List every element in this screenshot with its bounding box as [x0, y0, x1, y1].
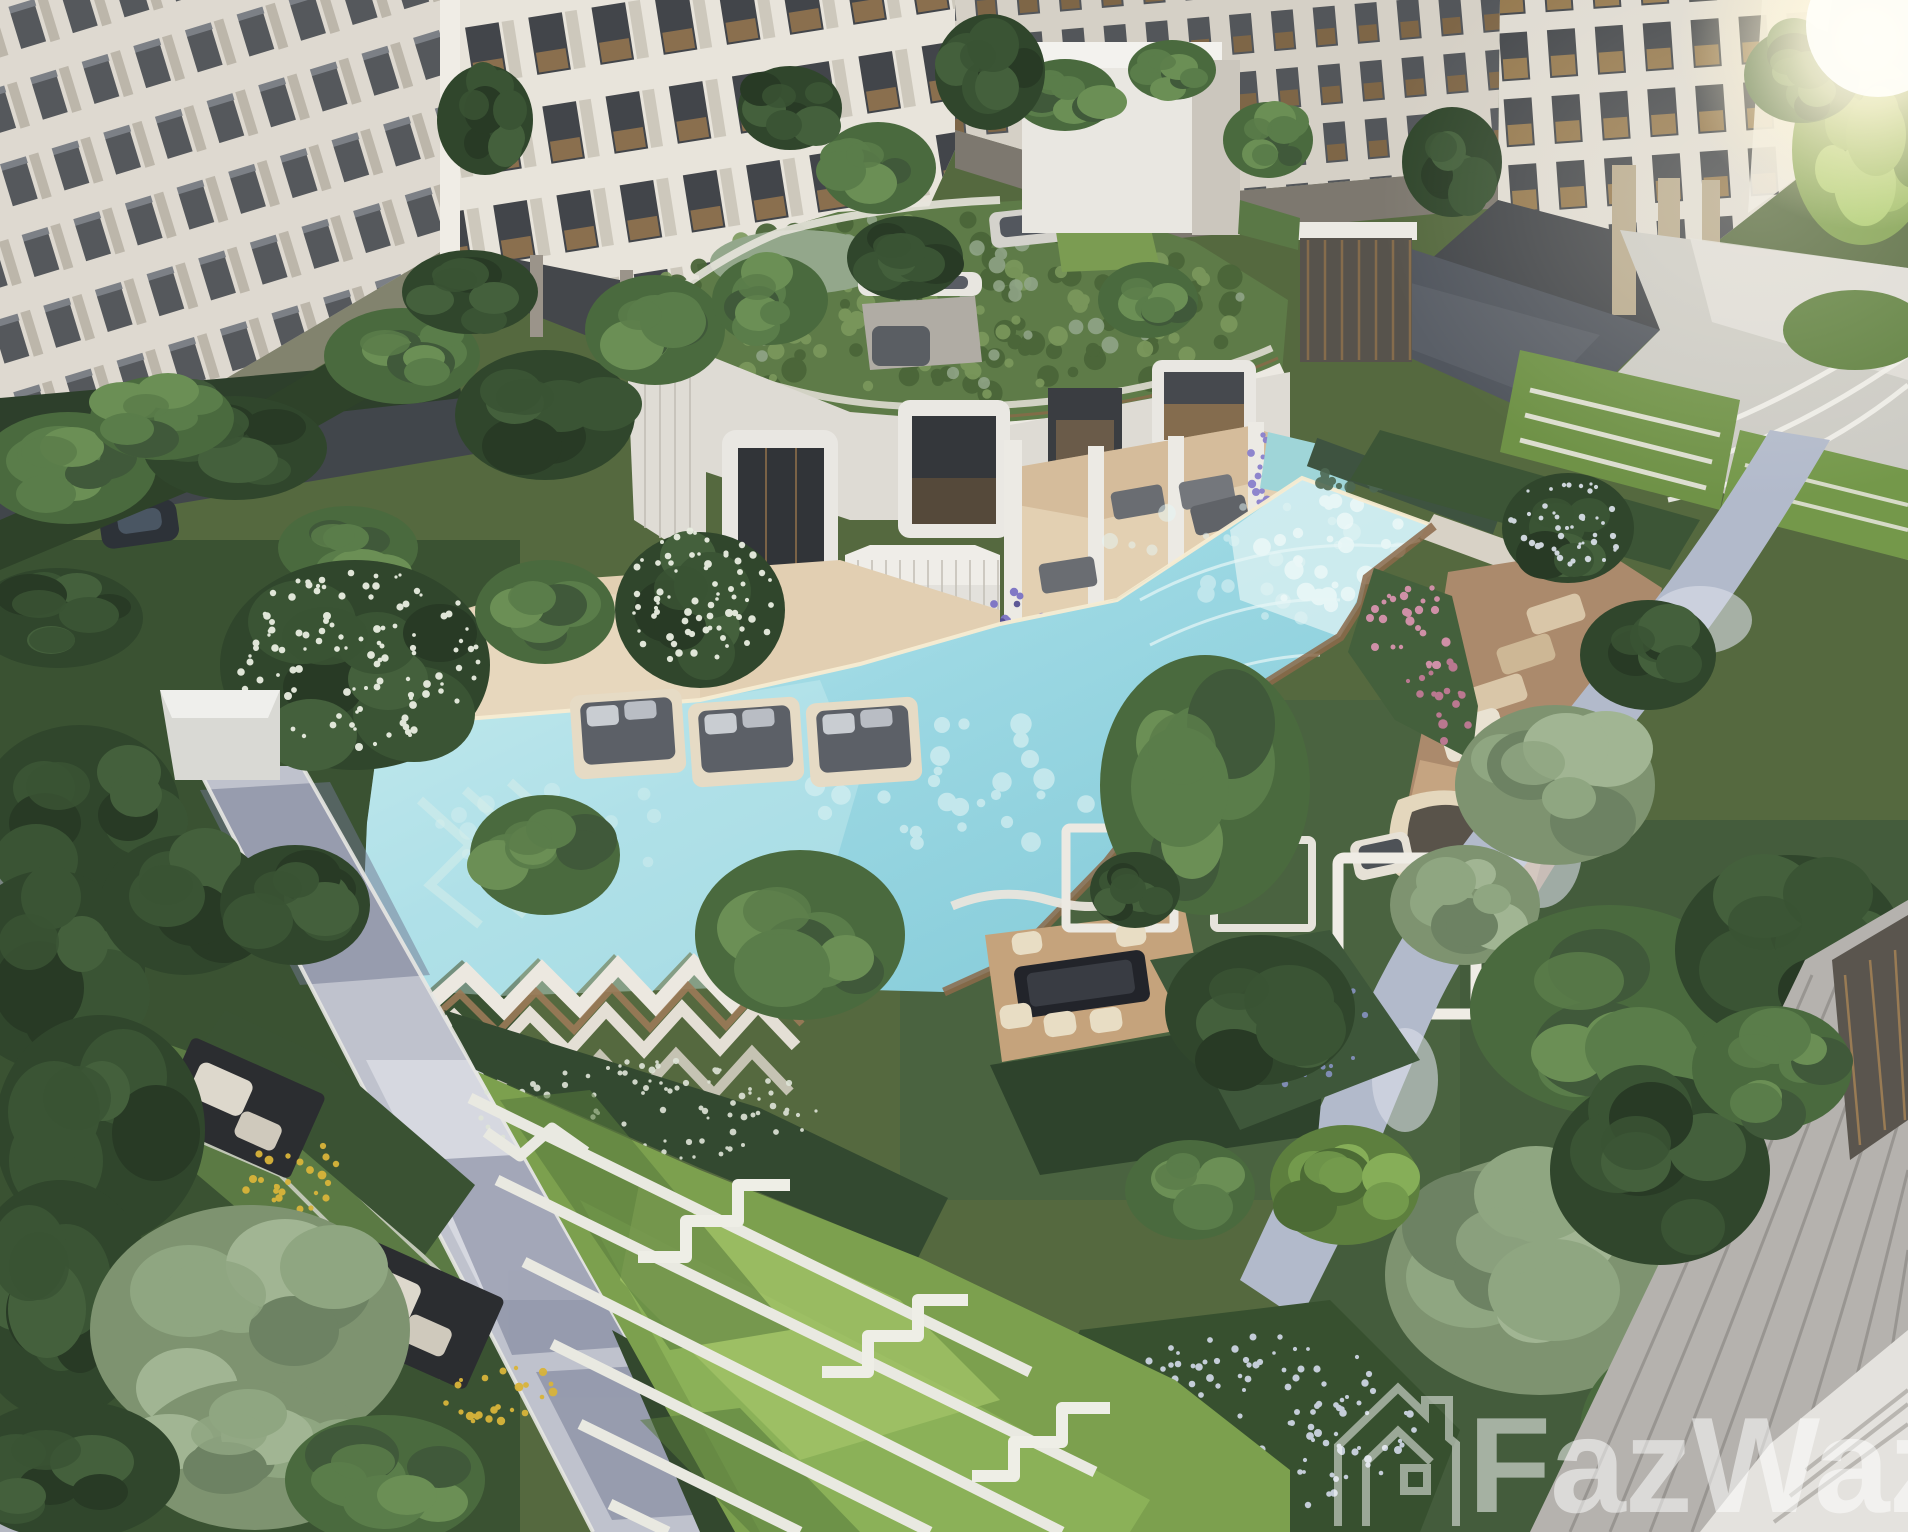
svg-text:FazWaz: FazWaz — [1468, 1389, 1908, 1532]
